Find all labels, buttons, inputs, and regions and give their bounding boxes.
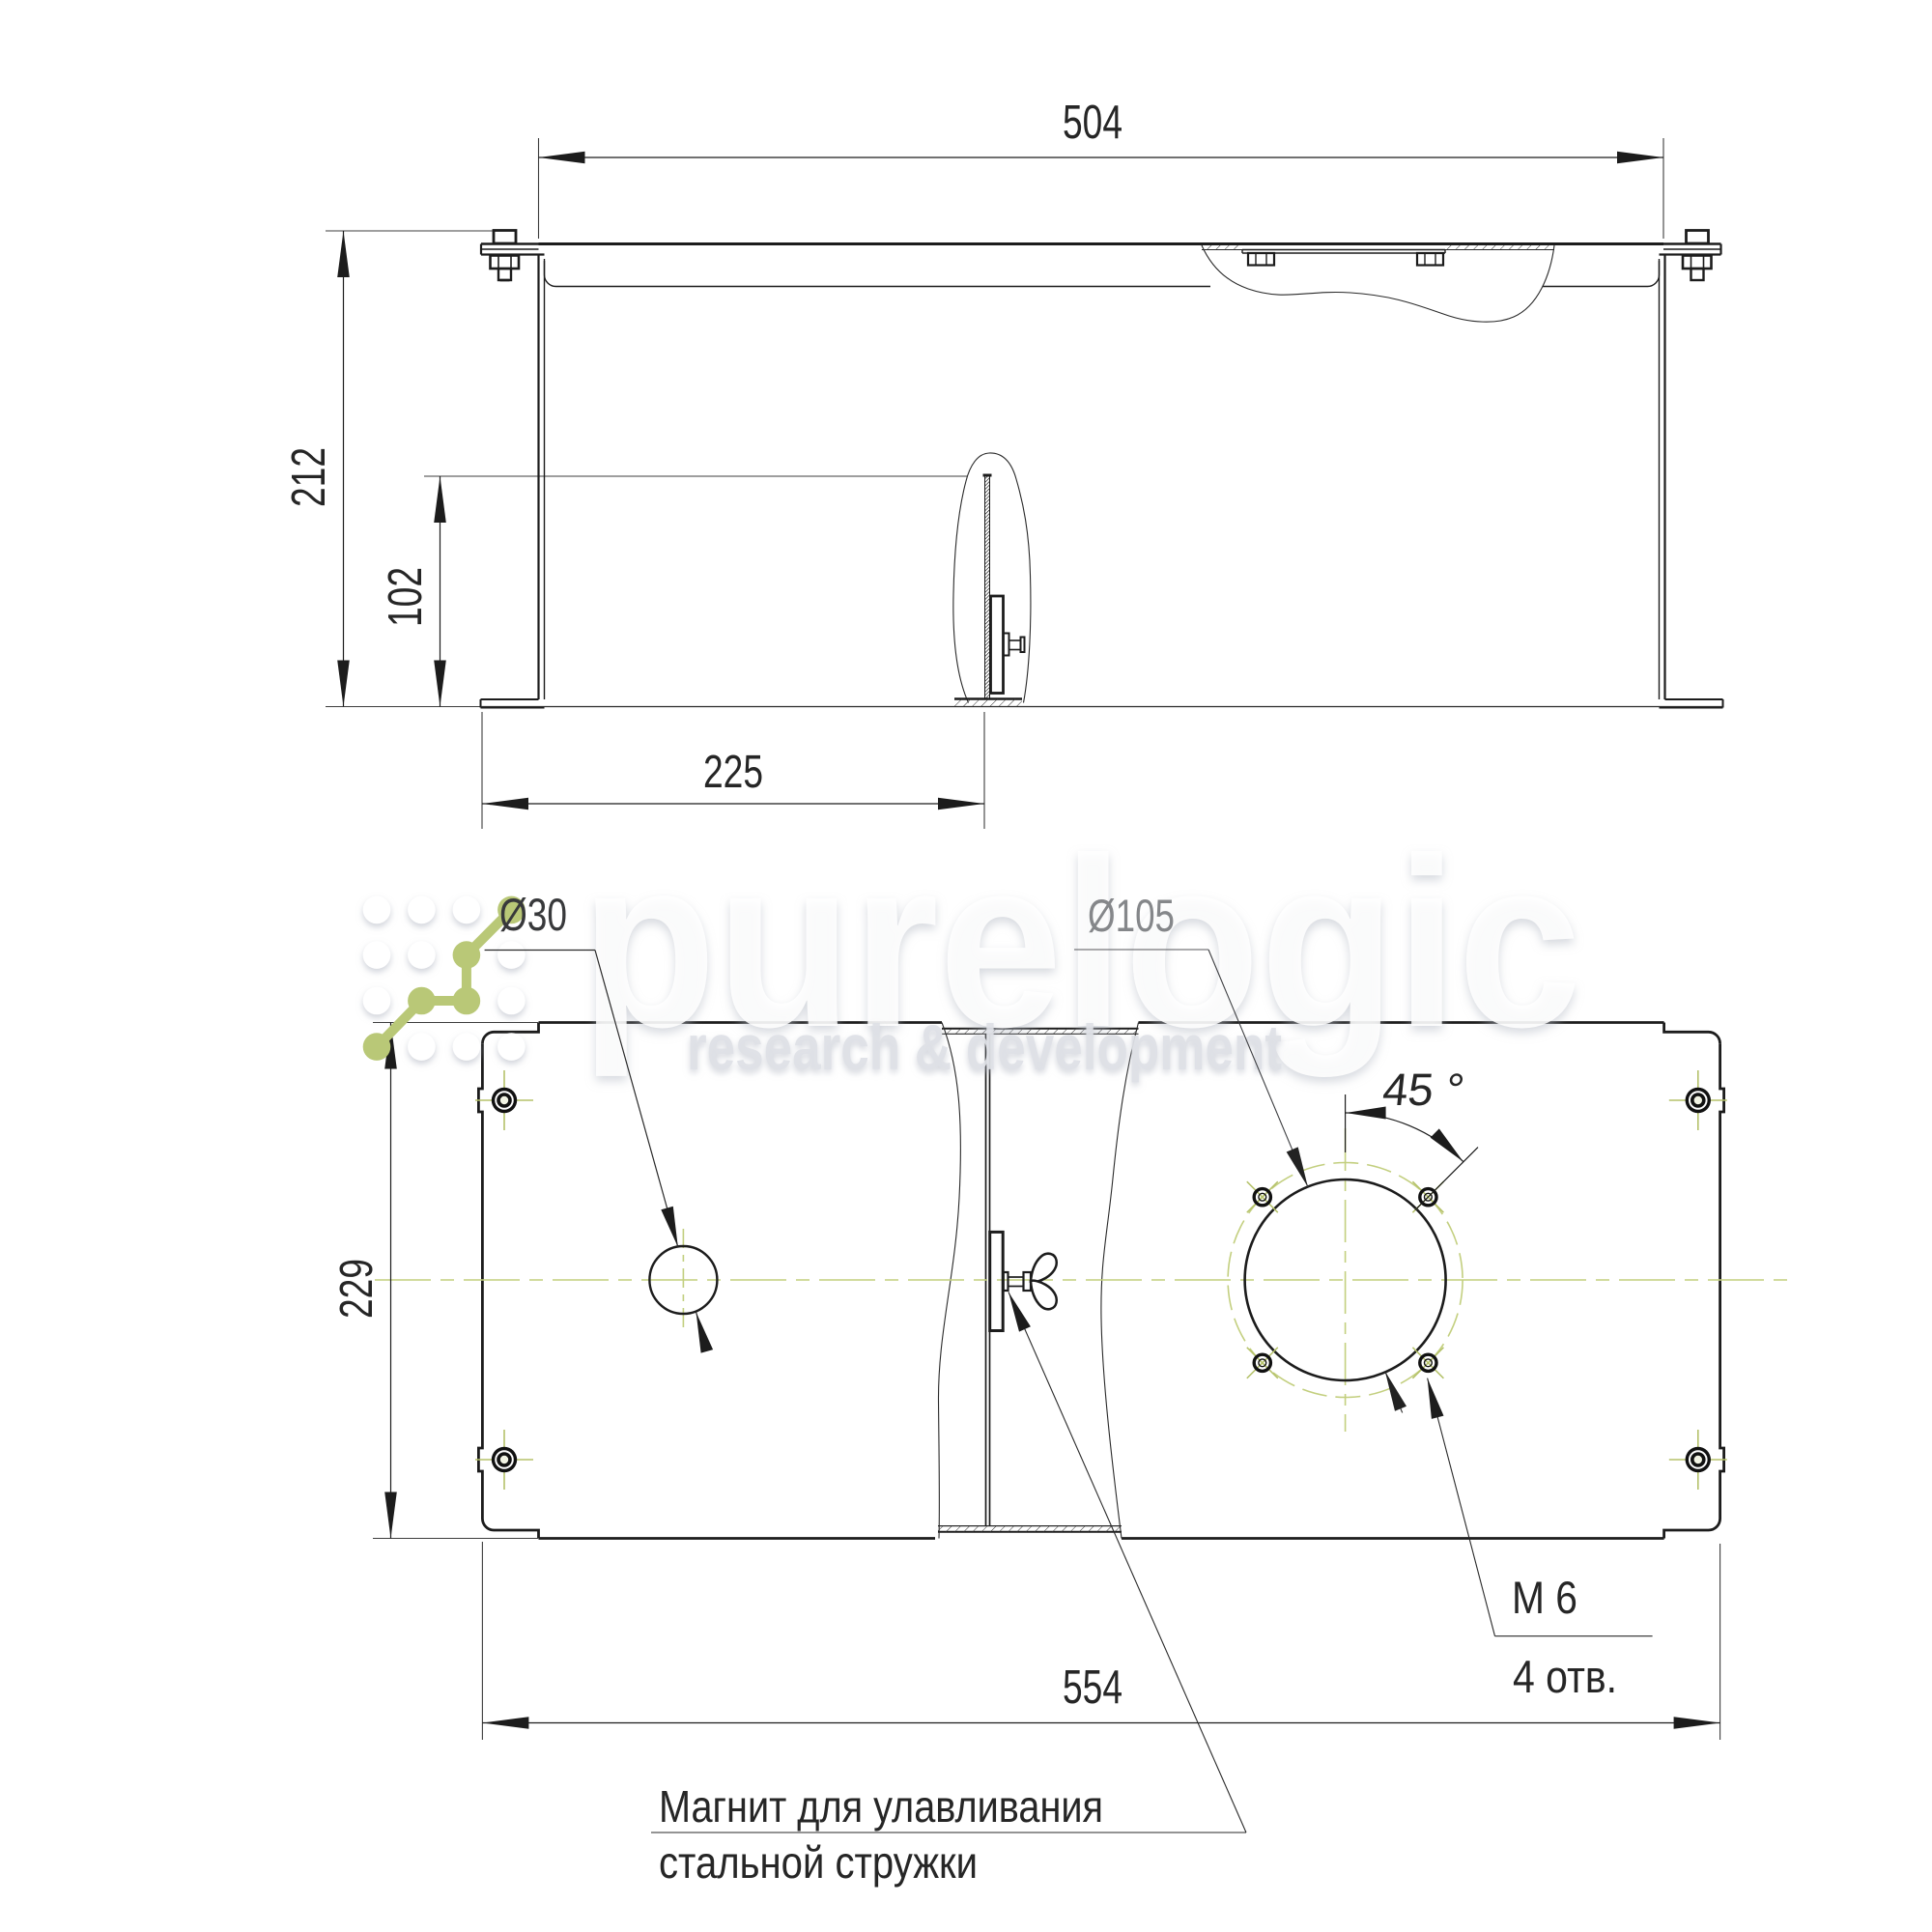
svg-text:4 отв.: 4 отв. [1513,1651,1617,1702]
svg-text:стальной стружки: стальной стружки [659,1837,978,1888]
svg-text:554: 554 [1063,1662,1122,1714]
svg-text:229: 229 [331,1259,383,1319]
svg-text:212: 212 [283,447,335,507]
svg-text:Ø105: Ø105 [1088,890,1175,941]
svg-text:504: 504 [1063,97,1122,149]
svg-text:102: 102 [380,567,432,627]
svg-text:Магнит для улавливания: Магнит для улавливания [659,1781,1103,1832]
svg-text:Ø30: Ø30 [499,889,567,940]
svg-text:research & development: research & development [687,1011,1282,1083]
svg-text:M 6: M 6 [1512,1572,1577,1623]
svg-text:225: 225 [703,747,763,798]
